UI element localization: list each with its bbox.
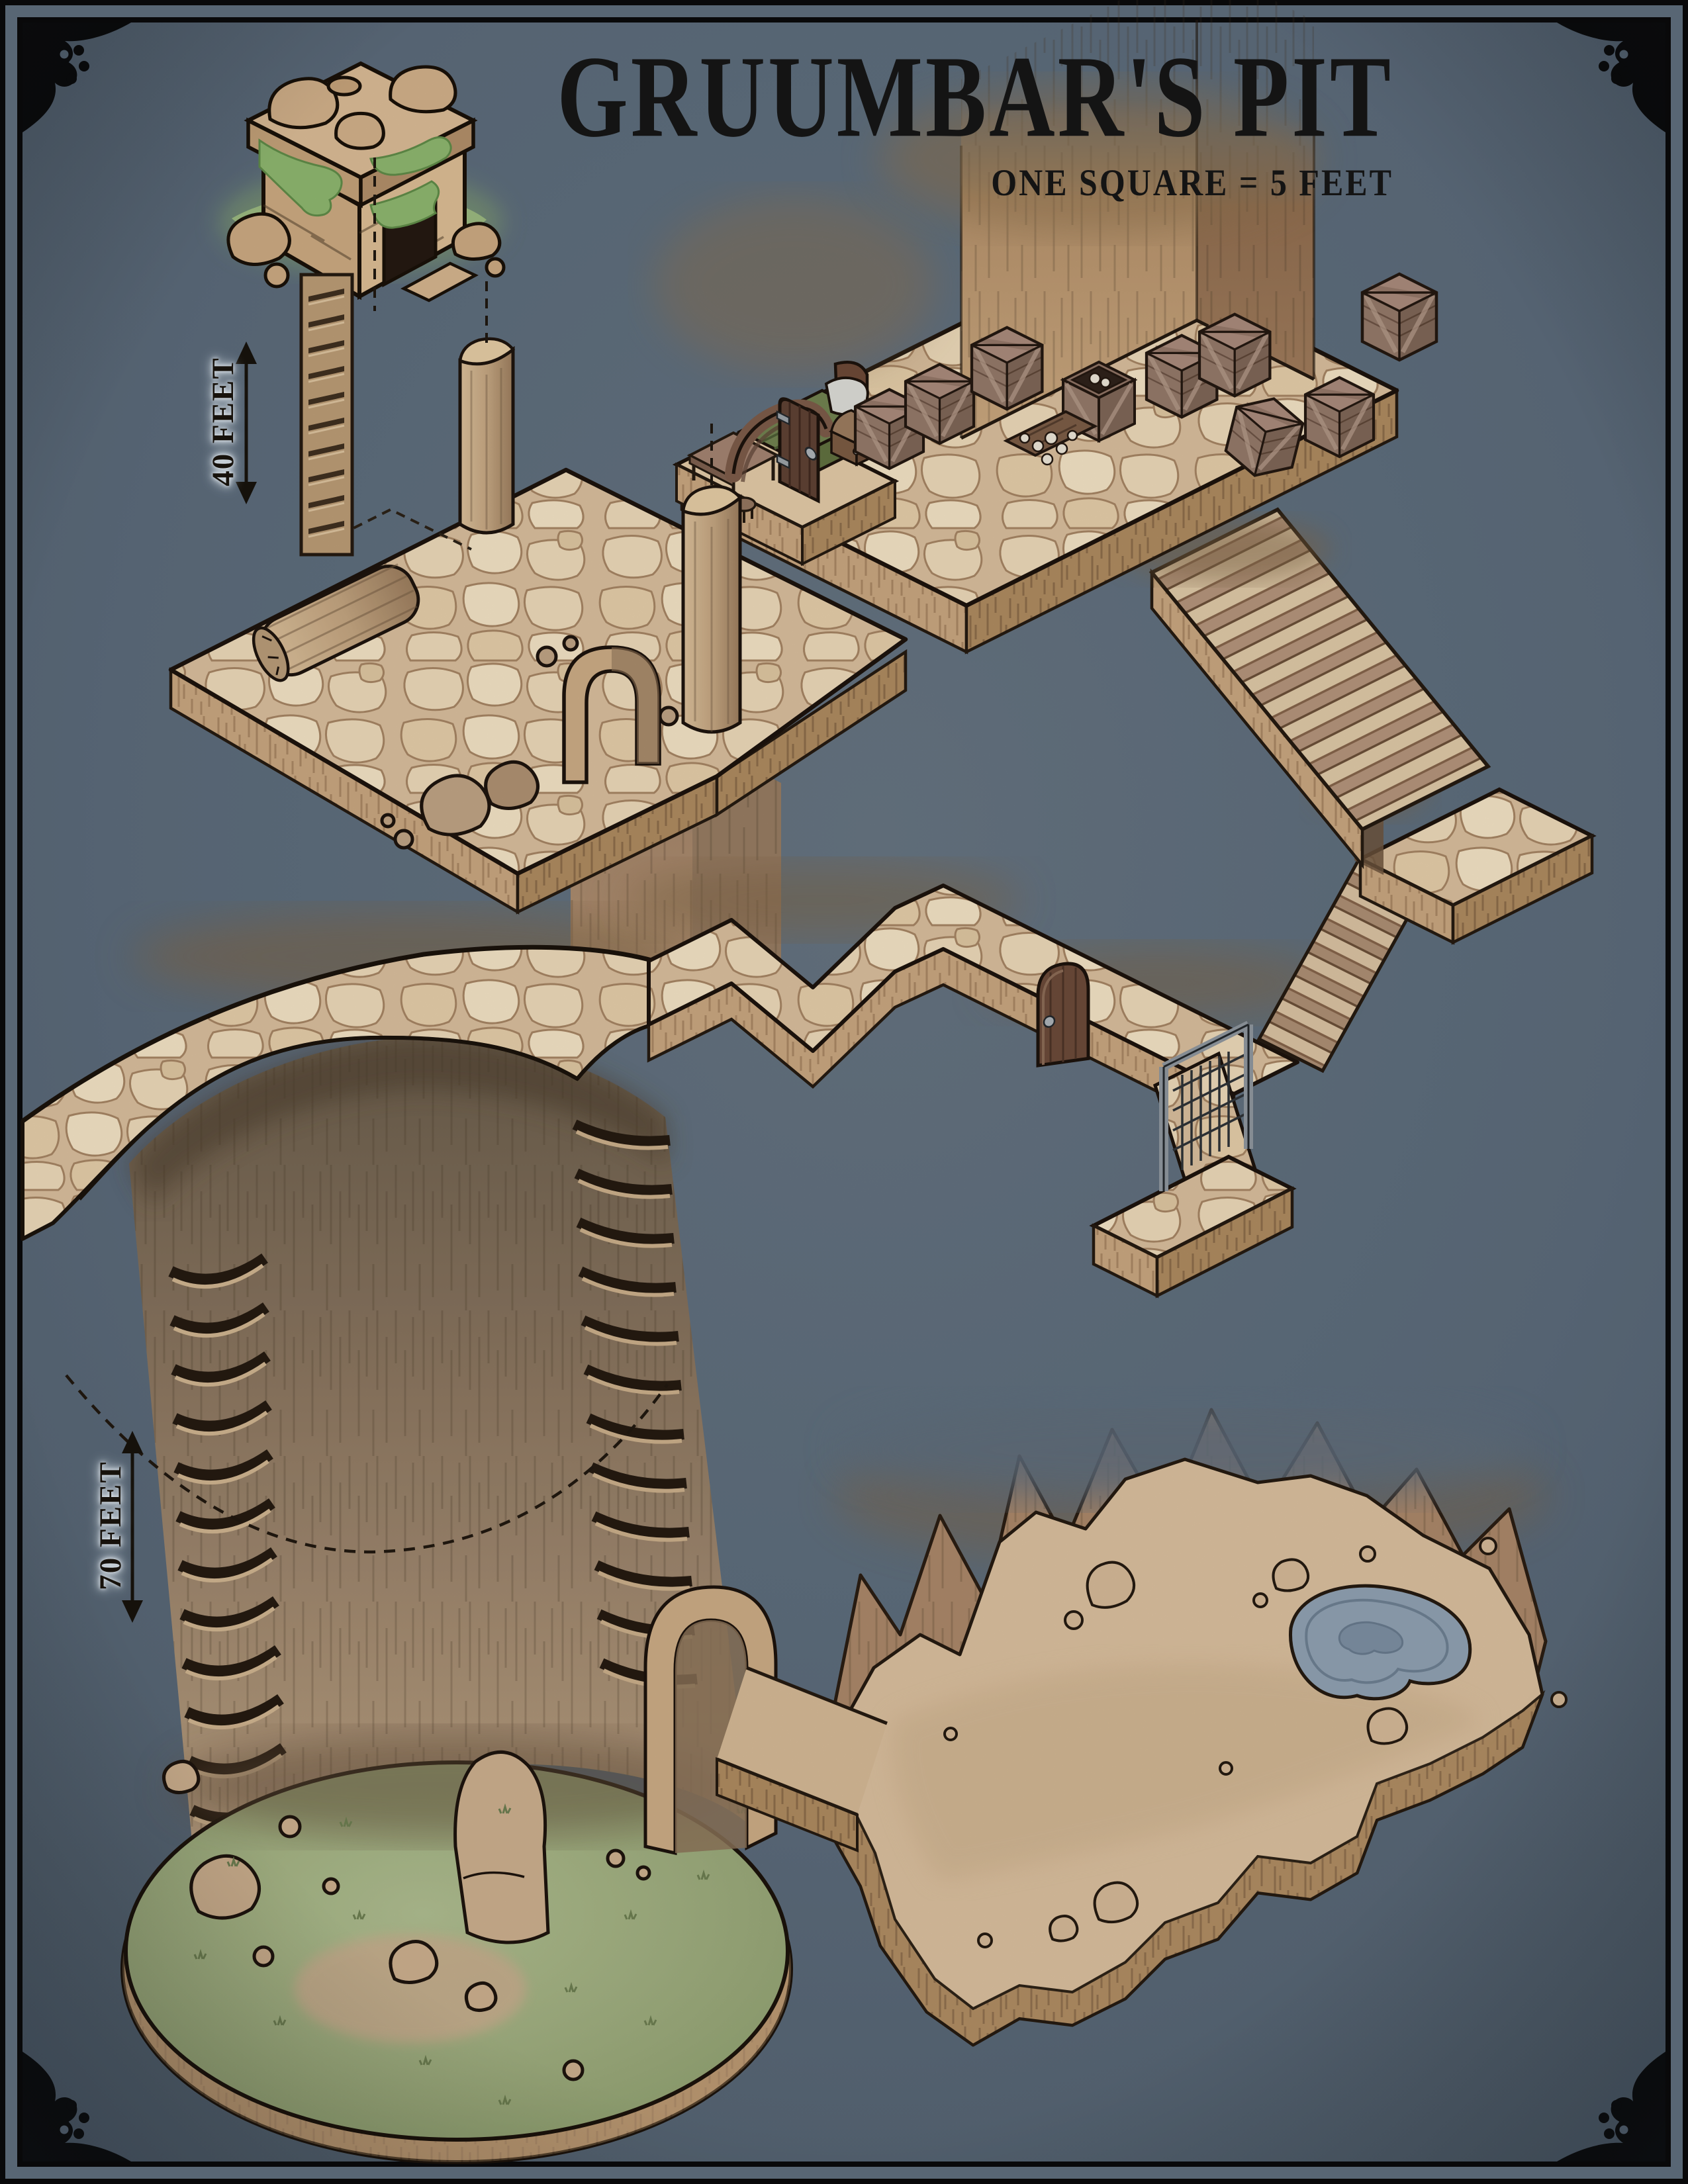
map-page: GRUUMBAR'S PIT ONE SQUARE = 5 FEET 40 FE… — [0, 0, 1688, 2184]
scale-label-70-feet: 70 FEET — [93, 1461, 128, 1590]
vignette — [23, 23, 1665, 2161]
map-canvas — [0, 0, 1688, 2184]
scale-label-40-feet: 40 FEET — [205, 357, 241, 486]
